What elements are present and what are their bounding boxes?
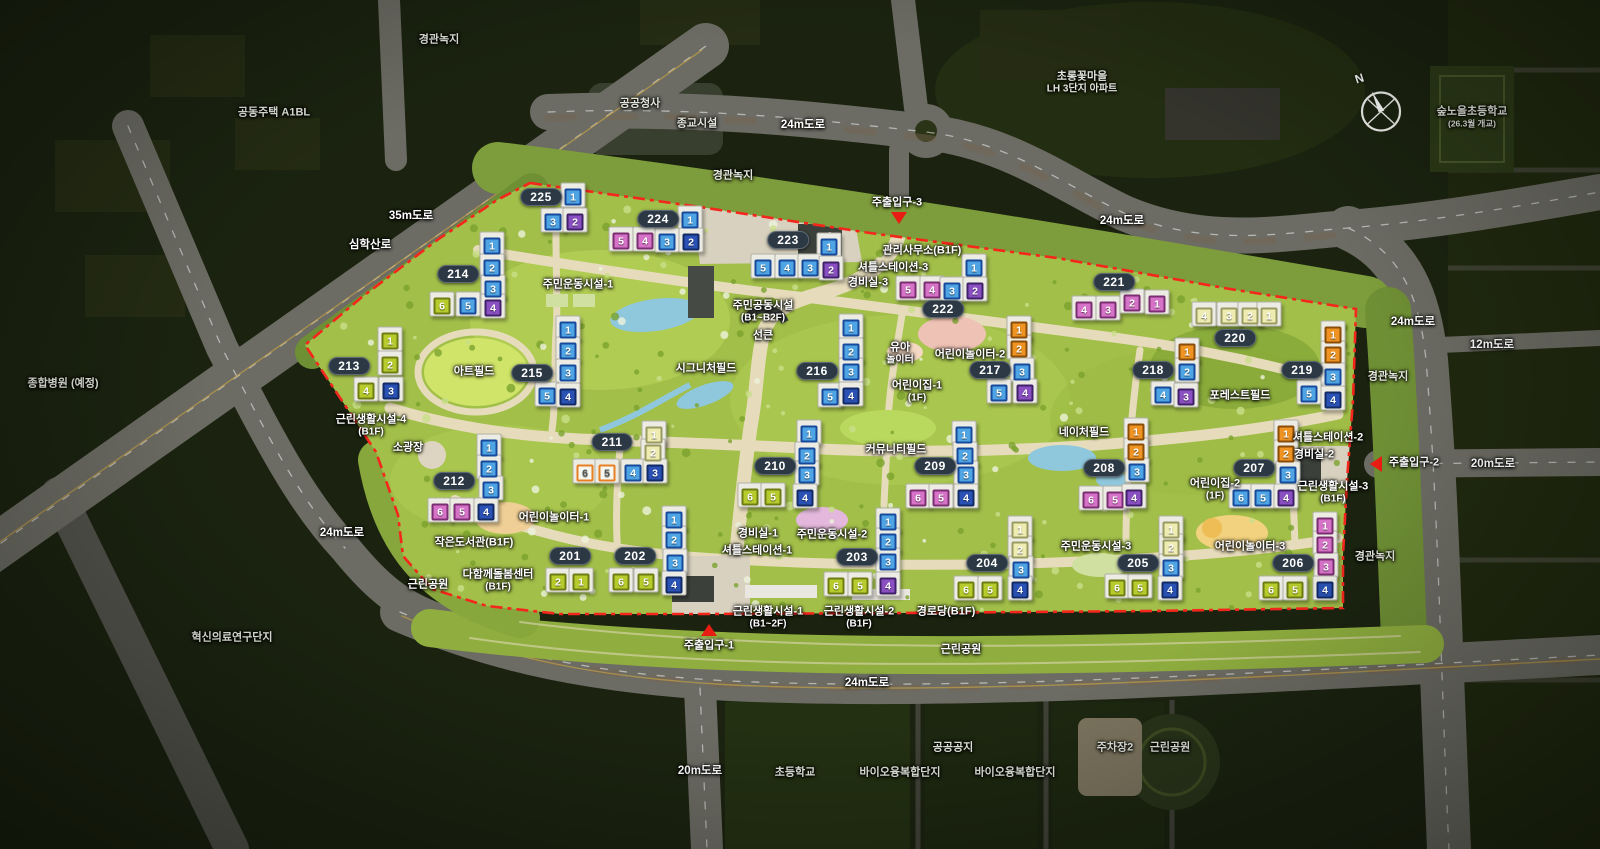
area-label-text2: LH 3단지 아파트 — [1047, 84, 1117, 96]
unit-tile: 4 — [625, 465, 642, 482]
area-label: 경관녹지 — [713, 169, 753, 182]
unit-tile: 6 — [434, 298, 451, 315]
area-label-text: 경관녹지 — [419, 33, 459, 45]
unit-tile: 4 — [1155, 387, 1172, 404]
unit-tile: 4 — [1017, 385, 1034, 402]
building-badge-205: 205 — [1117, 554, 1159, 572]
area-label: 혁신의료연구단지 — [192, 631, 273, 644]
unit-tile: 3 — [1221, 308, 1238, 325]
area-label: 경관녹지 — [1368, 370, 1408, 383]
unit-tile: 5 — [933, 490, 950, 507]
unit-tile: 5 — [900, 282, 917, 299]
unit-tile: 3 — [483, 482, 500, 499]
unit-tile: 2 — [1128, 444, 1145, 461]
area-label-text: 경관녹지 — [1368, 370, 1408, 382]
road-label: 20m도로 — [1471, 458, 1515, 472]
unit-tile: 3 — [802, 260, 819, 277]
road-label: 24m도로 — [1100, 215, 1144, 229]
road-label: 24m도로 — [320, 527, 364, 541]
area-label-text: 공공청사 — [620, 97, 660, 109]
facility-label-text: 근린공원 — [408, 578, 448, 590]
unit-tile: 6 — [910, 490, 927, 507]
facility-label-text2: (1F) — [1190, 491, 1240, 503]
unit-tile: 3 — [1013, 562, 1030, 579]
unit-tile: 3 — [958, 467, 975, 484]
unit-tile: 3 — [880, 554, 897, 571]
unit-tile: 6 — [432, 504, 449, 521]
facility-label-text2: (1F) — [892, 393, 942, 405]
facility-label: 어린이놀이터-1 — [519, 511, 590, 524]
unit-tile: 1 — [646, 427, 663, 444]
unit-tile: 5 — [638, 574, 655, 591]
building-badge-215: 215 — [511, 364, 553, 382]
facility-label-text: 포레스트필드 — [1210, 389, 1271, 401]
unit-tile: 6 — [1109, 580, 1126, 597]
building-badge-223: 223 — [767, 231, 809, 249]
facility-label-text: 네이처필드 — [1059, 426, 1110, 438]
road-label-text: 20m도로 — [678, 765, 722, 777]
unit-tile: 4 — [843, 388, 860, 405]
unit-tile: 3 — [647, 465, 664, 482]
unit-tile: 4 — [1317, 582, 1334, 599]
facility-label: 선큰 — [753, 329, 773, 342]
unit-tile: 4 — [797, 490, 814, 507]
unit-tile: 3 — [1280, 467, 1297, 484]
unit-tile: 6 — [577, 465, 594, 482]
unit-tile: 6 — [1083, 492, 1100, 509]
area-label-text: 경관녹지 — [1355, 550, 1395, 562]
unit-tile: 2 — [1242, 308, 1259, 325]
unit-tile: 5 — [822, 389, 839, 406]
facility-label-text: 근린공원 — [941, 643, 981, 655]
facility-label-text: 시그니처필드 — [676, 362, 737, 374]
road-label: 35m도로 — [389, 210, 433, 224]
area-label-text: 초롱꽃마을 — [1057, 70, 1108, 82]
road-label: 20m도로 — [678, 765, 722, 779]
unit-tile: 2 — [880, 534, 897, 551]
road-label-text: 24m도로 — [1100, 215, 1144, 227]
facility-label-text: 주민운동시설-2 — [797, 528, 868, 540]
unit-tile: 1 — [666, 512, 683, 529]
compass-icon: N — [1357, 88, 1405, 141]
unit-tile: 5 — [755, 260, 772, 277]
facility-label-text: 아트필드 — [454, 365, 494, 377]
building-badge-201: 201 — [549, 547, 591, 565]
unit-tile: 1 — [1011, 322, 1028, 339]
unit-tile: 3 — [659, 234, 676, 251]
unit-tile: 2 — [567, 214, 584, 231]
unit-tile: 4 — [478, 504, 495, 521]
area-label: 경관녹지 — [419, 33, 459, 46]
unit-tile: 3 — [1129, 464, 1146, 481]
facility-label: 경비실-1 — [738, 527, 778, 540]
unit-tile: 3 — [1014, 364, 1031, 381]
area-label: 종교시설 — [677, 117, 717, 130]
unit-tile: 1 — [382, 333, 399, 350]
facility-label: 근린생활시설-4(B1F) — [336, 413, 407, 438]
facility-label-text: 소광장 — [393, 441, 423, 453]
facility-label-text: 경비실-1 — [738, 527, 778, 539]
gate-arrow-icon — [1370, 456, 1382, 472]
unit-tile: 3 — [843, 364, 860, 381]
area-label-text: 근린공원 — [1150, 741, 1190, 753]
facility-label: 시그니처필드 — [676, 362, 737, 375]
facility-label-text: 어린이놀이터-2 — [935, 348, 1006, 360]
area-label-text: 종합병원 (예정) — [27, 377, 98, 389]
unit-tile: 6 — [828, 578, 845, 595]
unit-tile: 3 — [1318, 559, 1335, 576]
unit-tile: 4 — [958, 490, 975, 507]
area-label: 숲노을초등학교(26.3월 개교) — [1437, 105, 1508, 128]
area-label-text: 종교시설 — [677, 117, 717, 129]
unit-tile: 4 — [358, 383, 375, 400]
unit-tile: 5 — [765, 489, 782, 506]
unit-tile: 1 — [682, 212, 699, 229]
facility-label: 소광장 — [393, 441, 423, 454]
building-badge-214: 214 — [437, 265, 479, 283]
unit-tile: 3 — [485, 281, 502, 298]
facility-label: 어린이놀이터-2 — [935, 348, 1006, 361]
building-badge-202: 202 — [614, 547, 656, 565]
unit-tile: 1 — [1325, 327, 1342, 344]
building-badge-212: 212 — [433, 472, 475, 490]
facility-label-text: 어린이놀이터-3 — [1215, 540, 1286, 552]
unit-tile: 5 — [1301, 386, 1318, 403]
unit-tile: 1 — [481, 440, 498, 457]
unit-tile: 5 — [1107, 492, 1124, 509]
area-label: 초롱꽃마을LH 3단지 아파트 — [1047, 70, 1117, 95]
area-label-text: 경관녹지 — [713, 169, 753, 181]
facility-label-text: 유아 — [890, 341, 910, 353]
unit-tile: 4 — [560, 389, 577, 406]
unit-tile: 5 — [539, 388, 556, 405]
gate-label: 주출입구-3 — [872, 196, 922, 209]
facility-label-text: 주민운동시설-3 — [1061, 540, 1132, 552]
facility-label-text: 셔틀스테이션-1 — [722, 544, 793, 556]
building-badge-221: 221 — [1093, 273, 1135, 291]
facility-label: 경비실-3 — [848, 276, 888, 289]
facility-label: 다함께돌봄센터(B1F) — [463, 568, 534, 593]
facility-label: 주민운동시설-3 — [1061, 540, 1132, 553]
facility-label: 근린생활시설-1(B1~2F) — [733, 605, 804, 630]
unit-tile: 2 — [683, 234, 700, 251]
facility-label-text: 경비실-3 — [848, 276, 888, 288]
unit-tile: 3 — [545, 214, 562, 231]
area-label: 공동주택 A1BL — [238, 106, 310, 119]
facility-label: 셔틀스테이션-1 — [722, 544, 793, 557]
unit-tile: 2 — [481, 461, 498, 478]
unit-tile: 5 — [991, 385, 1008, 402]
unit-tile: 1 — [565, 189, 582, 206]
facility-label: 셔틀스테이션-2 — [1293, 431, 1364, 444]
building-badge-220: 220 — [1214, 329, 1256, 347]
building-badge-222: 222 — [922, 300, 964, 318]
building-badge-209: 209 — [914, 457, 956, 475]
unit-tile: 2 — [1325, 347, 1342, 364]
facility-label-text: 셔틀스테이션-2 — [1293, 431, 1364, 443]
facility-label-text2: (B1~2F) — [733, 619, 804, 631]
facility-label: 근린공원 — [941, 643, 981, 656]
unit-tile: 1 — [880, 514, 897, 531]
building-badge-218: 218 — [1132, 361, 1174, 379]
gate-label: 주출입구-2 — [1389, 456, 1439, 469]
facility-label: 작은도서관(B1F) — [435, 536, 514, 549]
facility-label: 유아놀이터 — [886, 341, 914, 366]
unit-tile: 2 — [843, 344, 860, 361]
area-label-text: 초등학교 — [775, 766, 815, 778]
area-label-text2: (26.3월 개교) — [1437, 119, 1508, 129]
unit-tile: 4 — [1162, 582, 1179, 599]
area-label-text: 숲노을초등학교 — [1437, 105, 1508, 117]
facility-label-text2: 놀이터 — [886, 355, 914, 367]
unit-tile: 2 — [560, 343, 577, 360]
unit-tile: 4 — [880, 578, 897, 595]
road-label-text: 24m도로 — [320, 527, 364, 539]
facility-label: 어린이집-1(1F) — [892, 379, 942, 404]
facility-label-text: 셔틀스테이션-3 — [858, 261, 929, 273]
road-label: 24m도로 — [845, 677, 889, 691]
unit-tile: 4 — [1076, 302, 1093, 319]
facility-label-text2: (B1F) — [463, 582, 534, 594]
unit-tile: 3 — [1325, 369, 1342, 386]
unit-tile: 3 — [1100, 302, 1117, 319]
facility-label-text2: (B1F) — [336, 427, 407, 439]
facility-label: 근린생활시설-2(B1F) — [824, 605, 895, 630]
area-label: 공공공지 — [933, 741, 973, 754]
facility-label: 관리사무소(B1F) — [883, 244, 962, 257]
unit-tile: 1 — [821, 239, 838, 256]
unit-tile: 3 — [799, 467, 816, 484]
unit-tile: 2 — [1012, 542, 1029, 559]
unit-tile: 5 — [613, 233, 630, 250]
facility-label: 어린이놀이터-3 — [1215, 540, 1286, 553]
unit-tile: 4 — [1278, 490, 1295, 507]
facility-label-text: 근린생활시설-1 — [733, 605, 804, 617]
unit-tile: 2 — [484, 260, 501, 277]
unit-tile: 6 — [613, 574, 630, 591]
area-label: 바이오융복합단지 — [975, 766, 1056, 779]
unit-tile: 5 — [1255, 490, 1272, 507]
unit-tile: 2 — [967, 283, 984, 300]
unit-tile: 4 — [1012, 582, 1029, 599]
building-badge-213: 213 — [328, 357, 370, 375]
unit-tile: 1 — [801, 426, 818, 443]
unit-tile: 2 — [1278, 446, 1295, 463]
facility-label-text: 경비실-2 — [1294, 448, 1334, 460]
unit-tile: 1 — [1128, 424, 1145, 441]
facility-label: 경로당(B1F) — [917, 605, 975, 618]
facility-label-text: 어린이집-1 — [892, 379, 942, 391]
unit-tile: 5 — [1132, 580, 1149, 597]
road-label-text: 24m도로 — [845, 677, 889, 689]
unit-tile: 2 — [382, 357, 399, 374]
road-label-text: 24m도로 — [781, 119, 825, 131]
facility-label: 포레스트필드 — [1210, 389, 1271, 402]
facility-label: 주민운동시설-1 — [543, 278, 614, 291]
unit-tile: 4 — [666, 577, 683, 594]
unit-tile: 3 — [944, 283, 961, 300]
facility-label: 네이처필드 — [1059, 426, 1110, 439]
unit-tile: 6 — [1263, 582, 1280, 599]
road-label-text: 24m도로 — [1391, 316, 1435, 328]
unit-tile: 3 — [383, 383, 400, 400]
area-label: 경관녹지 — [1355, 550, 1395, 563]
unit-tile: 5 — [982, 582, 999, 599]
road-label: 심학산로 — [349, 239, 391, 253]
unit-tile: 4 — [1196, 308, 1213, 325]
unit-tile: 1 — [1149, 296, 1166, 313]
facility-label: 주민공동시설(B1~B2F) — [733, 299, 794, 324]
road-label: 12m도로 — [1470, 339, 1514, 353]
facility-label: 커뮤니티필드 — [866, 443, 927, 456]
facility-label-text: 작은도서관(B1F) — [435, 536, 514, 548]
building-badge-210: 210 — [754, 457, 796, 475]
facility-label: 어린이집-2(1F) — [1190, 477, 1240, 502]
unit-tile: 2 — [1011, 341, 1028, 358]
facility-label: 근린생활시설-3(B1F) — [1298, 480, 1369, 505]
road-label: 24m도로 — [781, 119, 825, 133]
facility-label-text: 근린생활시설-3 — [1298, 480, 1369, 492]
building-badge-207: 207 — [1233, 459, 1275, 477]
unit-tile: 2 — [1317, 537, 1334, 554]
building-badge-217: 217 — [969, 361, 1011, 379]
unit-tile: 2 — [666, 532, 683, 549]
facility-label-text: 어린이놀이터-1 — [519, 511, 590, 523]
unit-tile: 6 — [742, 489, 759, 506]
unit-tile: 2 — [645, 445, 662, 462]
facility-label-text: 커뮤니티필드 — [866, 443, 927, 455]
unit-tile: 1 — [1179, 344, 1196, 361]
unit-tile: 4 — [1325, 392, 1342, 409]
unit-tile: 6 — [958, 582, 975, 599]
facility-label-text: 관리사무소(B1F) — [883, 244, 962, 256]
facility-label: 근린공원 — [408, 578, 448, 591]
area-label-text: 공동주택 A1BL — [238, 106, 310, 118]
unit-tile: 1 — [1317, 518, 1334, 535]
facility-label-text2: (B1~B2F) — [733, 313, 794, 325]
unit-tile: 4 — [924, 282, 941, 299]
area-label-text: 혁신의료연구단지 — [192, 631, 273, 643]
unit-tile: 1 — [1163, 522, 1180, 539]
building-badge-219: 219 — [1281, 361, 1323, 379]
area-label: 바이오융복합단지 — [860, 766, 941, 779]
unit-tile: 3 — [1178, 389, 1195, 406]
facility-label-text2: (B1F) — [824, 619, 895, 631]
building-badge-211: 211 — [592, 433, 633, 451]
area-label: 주차장2 — [1097, 741, 1133, 754]
unit-tile: 5 — [852, 578, 869, 595]
building-badge-208: 208 — [1083, 459, 1125, 477]
area-label: 초등학교 — [775, 766, 815, 779]
facility-label: 아트필드 — [454, 365, 494, 378]
unit-tile: 2 — [550, 574, 567, 591]
facility-label-text: 주민공동시설 — [733, 299, 794, 311]
area-label: 종합병원 (예정) — [27, 377, 98, 390]
unit-tile: 5 — [1287, 582, 1304, 599]
facility-label-text: 주민운동시설-1 — [543, 278, 614, 290]
facility-label-text: 다함께돌봄센터 — [463, 568, 534, 580]
building-badge-224: 224 — [637, 210, 679, 228]
area-label: 근린공원 — [1150, 741, 1190, 754]
unit-tile: 3 — [560, 365, 577, 382]
unit-tile: 2 — [823, 262, 840, 279]
gate-arrow-icon — [701, 624, 717, 636]
building-badge-216: 216 — [796, 362, 838, 380]
area-label-text: 주차장2 — [1097, 741, 1133, 753]
facility-label-text2: (B1F) — [1298, 494, 1369, 506]
facility-label: 경비실-2 — [1294, 448, 1334, 461]
facility-label: 셔틀스테이션-3 — [858, 261, 929, 274]
building-badge-225: 225 — [520, 188, 562, 206]
unit-tile: 1 — [956, 427, 973, 444]
area-label-text: 바이오융복합단지 — [975, 766, 1056, 778]
site-plan-map: 1321543215432154324321432112354124312354… — [0, 0, 1600, 849]
road-label-text: 20m도로 — [1471, 458, 1515, 470]
unit-tile: 2 — [1179, 364, 1196, 381]
area-label-text: 바이오융복합단지 — [860, 766, 941, 778]
road-label-text: 35m도로 — [389, 210, 433, 222]
unit-tile: 4 — [485, 300, 502, 317]
facility-label-text: 근린생활시설-2 — [824, 605, 895, 617]
road-label-text: 12m도로 — [1470, 339, 1514, 351]
building-badge-204: 204 — [966, 554, 1008, 572]
gate-label: 주출입구-1 — [684, 639, 734, 652]
area-label: 공공청사 — [620, 97, 660, 110]
unit-tile: 2 — [1124, 295, 1141, 312]
unit-tile: 2 — [957, 448, 974, 465]
unit-tile: 5 — [599, 465, 616, 482]
unit-tile: 2 — [1163, 540, 1180, 557]
area-label-text: 공공공지 — [933, 741, 973, 753]
gate-label-text: 주출입구-3 — [872, 196, 922, 208]
unit-tile: 1 — [966, 260, 983, 277]
unit-tile: 4 — [1126, 490, 1143, 507]
gate-label-text: 주출입구-2 — [1389, 456, 1439, 468]
facility-label: 주민운동시설-2 — [797, 528, 868, 541]
facility-label-text: 어린이집-2 — [1190, 477, 1240, 489]
facility-label-text: 경로당(B1F) — [917, 605, 975, 617]
unit-tile: 1 — [1012, 522, 1029, 539]
unit-tile: 2 — [799, 448, 816, 465]
building-badge-206: 206 — [1272, 554, 1314, 572]
unit-tile: 3 — [1163, 560, 1180, 577]
unit-tile: 1 — [1261, 308, 1278, 325]
unit-tile: 3 — [667, 555, 684, 572]
road-label-text: 심학산로 — [349, 239, 391, 251]
facility-label-text: 선큰 — [753, 329, 773, 341]
building-badge-203: 203 — [836, 548, 878, 566]
unit-tile: 1 — [843, 320, 860, 337]
unit-tile: 5 — [454, 504, 471, 521]
unit-tile: 1 — [560, 322, 577, 339]
unit-tile: 4 — [779, 260, 796, 277]
facility-label-text: 근린생활시설-4 — [336, 413, 407, 425]
unit-tile: 4 — [637, 233, 654, 250]
gate-label-text: 주출입구-1 — [684, 639, 734, 651]
road-label: 24m도로 — [1391, 316, 1435, 330]
unit-tile: 1 — [573, 574, 590, 591]
gate-arrow-icon — [891, 212, 907, 224]
unit-tile: 5 — [460, 298, 477, 315]
unit-tile: 1 — [484, 238, 501, 255]
